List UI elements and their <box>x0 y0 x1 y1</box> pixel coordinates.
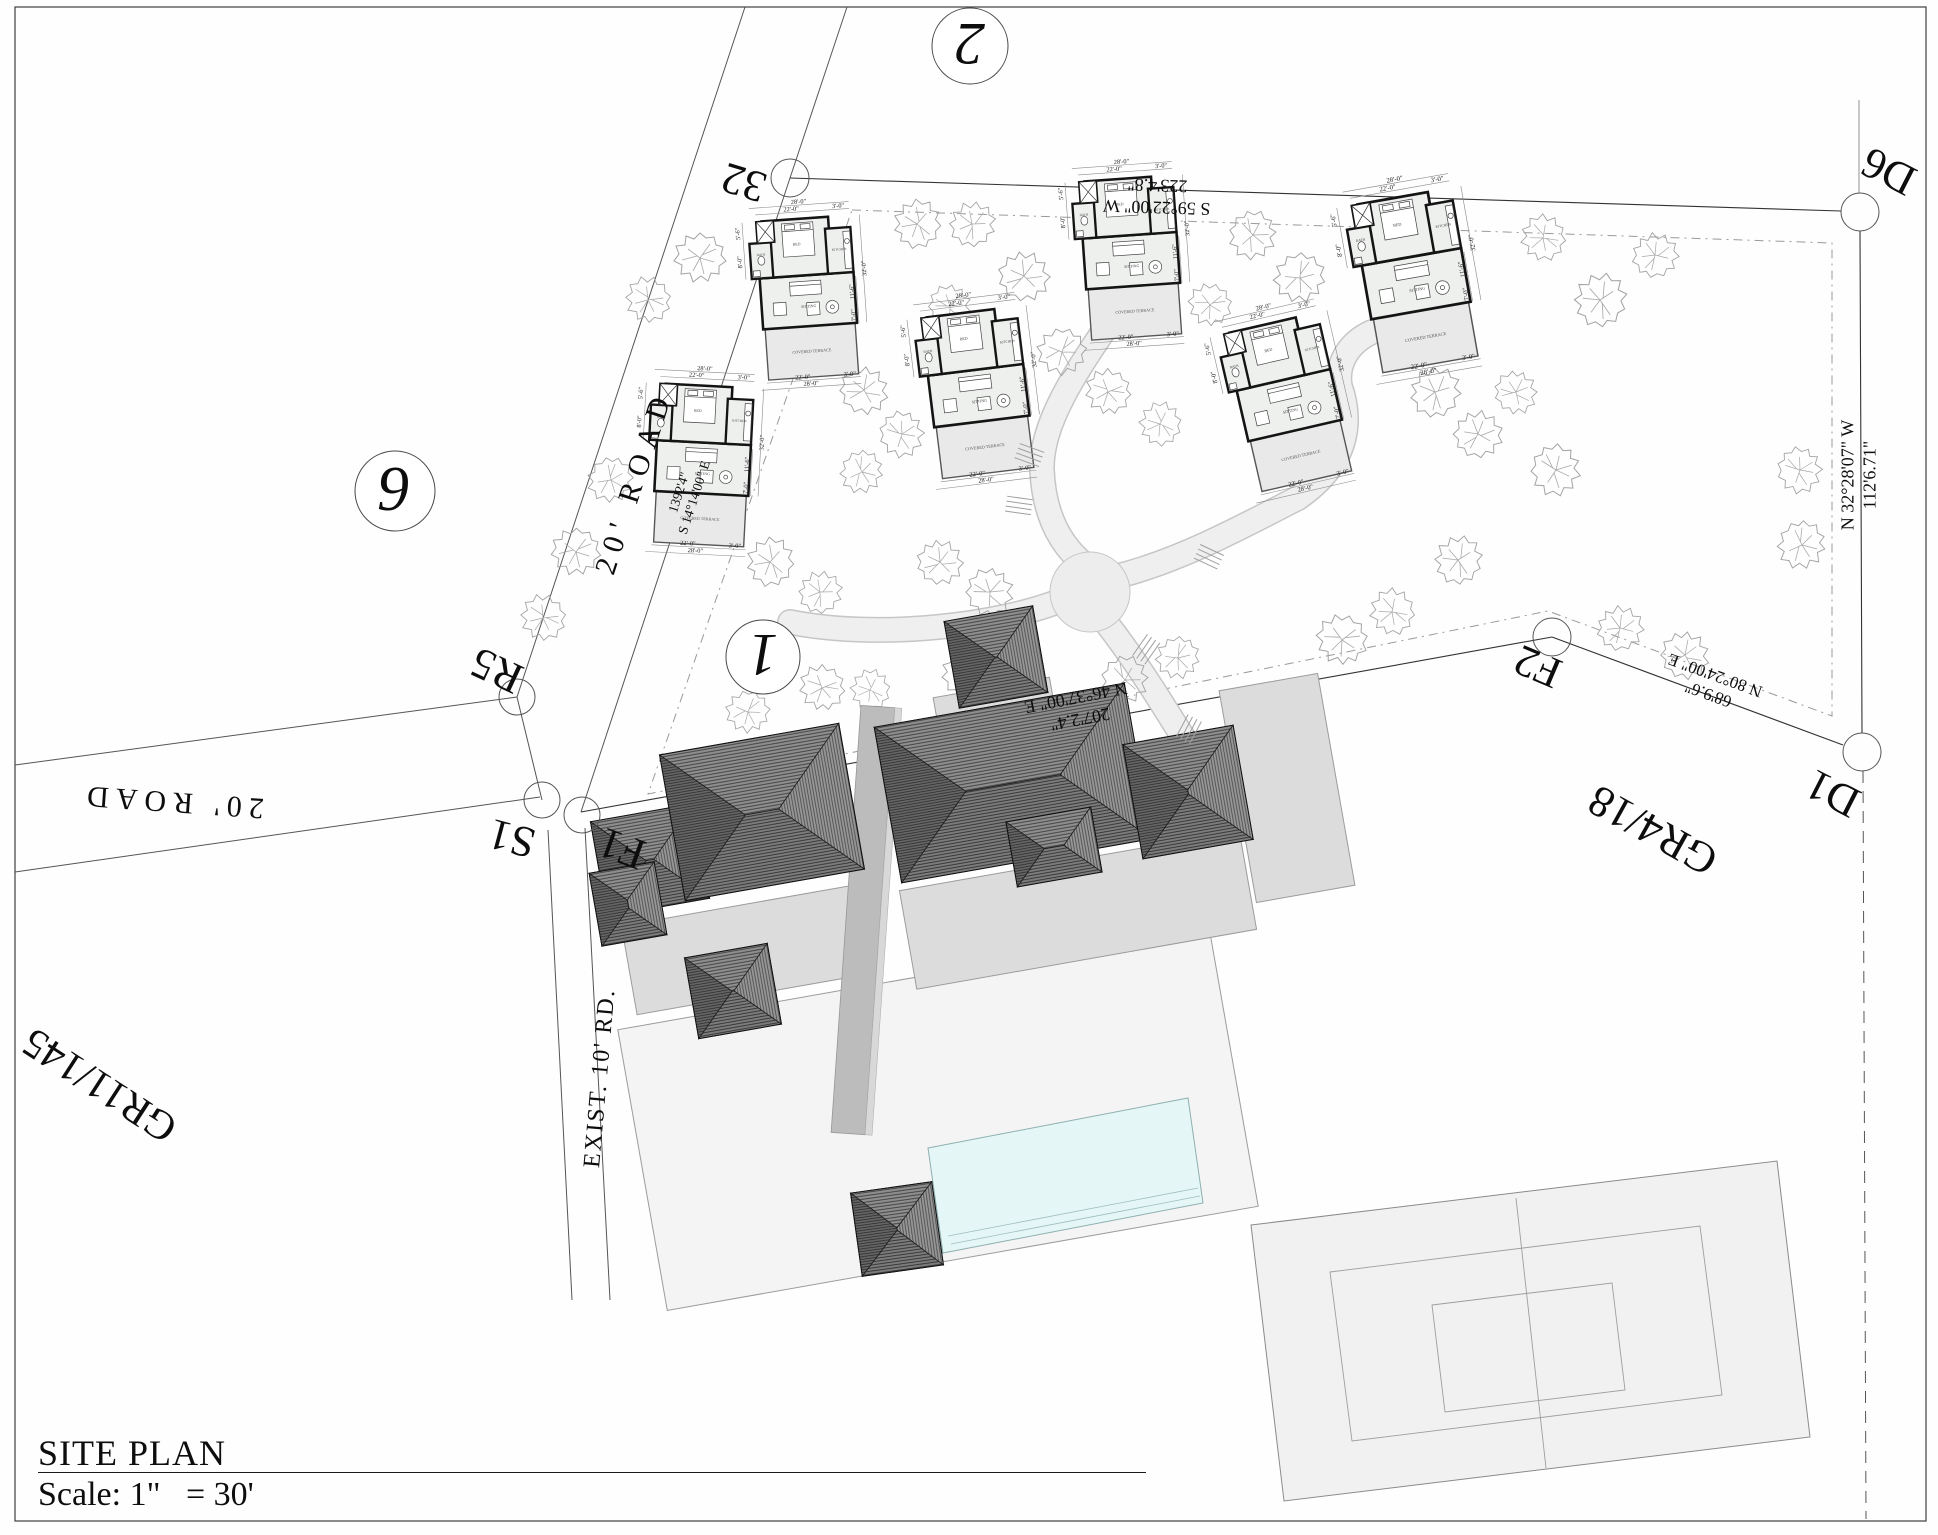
cottage-plan <box>896 284 1052 492</box>
roof-block <box>851 1182 944 1277</box>
tennis-court <box>1251 1161 1810 1501</box>
main-villa <box>589 606 1355 1311</box>
roof-block <box>589 862 667 946</box>
tree <box>745 535 796 588</box>
tree <box>1225 206 1281 264</box>
tree <box>833 443 891 502</box>
tree <box>1513 207 1574 269</box>
roof-block <box>1006 807 1102 887</box>
tree <box>791 656 854 718</box>
roof-block <box>685 943 782 1038</box>
bearing-east: N 32°28'07" W 112'6.71" <box>1837 420 1880 530</box>
tree <box>1451 408 1506 460</box>
cottage-plan <box>733 194 876 392</box>
bearing-north-bearing: S 59°22'00" W <box>1103 194 1211 219</box>
tree <box>551 528 601 575</box>
tree <box>511 586 575 650</box>
tree <box>1362 581 1422 642</box>
site-plan-drawing: BED BATH KITCHEN SITTING COVERED TERRACE… <box>0 0 1938 1535</box>
roof-block <box>1123 725 1253 859</box>
roof-block <box>944 606 1048 708</box>
cottages <box>629 154 1497 558</box>
tree <box>1625 226 1685 285</box>
boundary-dashed-extension <box>1863 771 1866 1519</box>
steps <box>1005 496 1033 514</box>
site-plan-sheet: BED BATH KITCHEN SITTING COVERED TERRACE… <box>0 0 1938 1535</box>
tree <box>1136 398 1185 449</box>
tree <box>674 233 726 282</box>
tree <box>1428 529 1489 592</box>
tree <box>940 192 1004 256</box>
tree <box>1265 243 1335 312</box>
garden-paths <box>790 240 1372 742</box>
central-plaza <box>1050 552 1130 632</box>
tree <box>893 198 943 251</box>
tree <box>1769 512 1834 578</box>
roof-block <box>660 723 865 900</box>
bearing-east-distance: 112'6.71" <box>1859 420 1881 530</box>
tree <box>616 268 680 332</box>
tree <box>1590 599 1650 657</box>
tree <box>1530 443 1582 497</box>
tree <box>1771 441 1827 499</box>
title-underline <box>38 1472 1146 1473</box>
bearing-north: S 59°22'00" W 223'4.8" <box>1103 173 1212 220</box>
tree <box>873 405 930 464</box>
plot-number-circles <box>355 8 1008 694</box>
bearing-east-bearing: N 32°28'07" W <box>1837 420 1859 530</box>
tree <box>913 537 966 588</box>
tree <box>1567 266 1634 335</box>
tree <box>579 448 643 512</box>
tree <box>1485 362 1546 422</box>
tree <box>1183 278 1237 330</box>
tree <box>1310 608 1374 670</box>
